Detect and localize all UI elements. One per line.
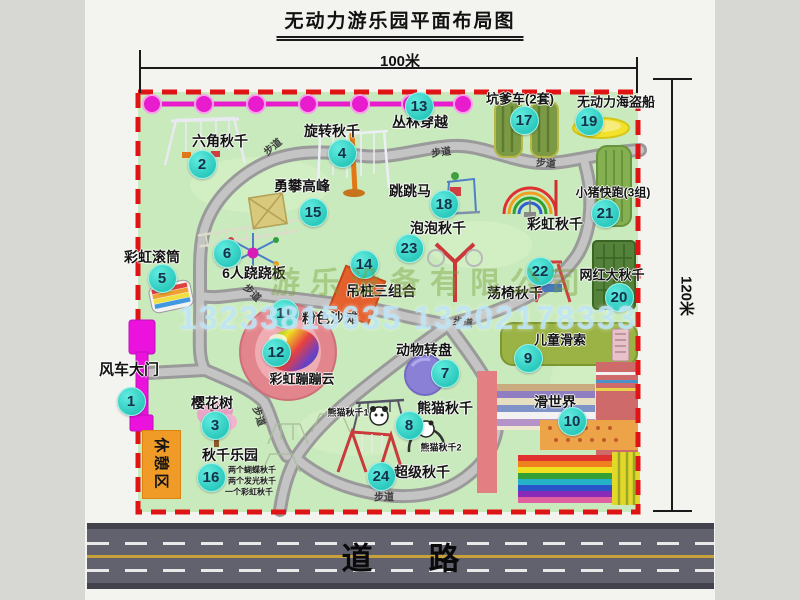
width-dimension-label: 100米: [380, 50, 420, 71]
road-label: 道路: [286, 534, 516, 579]
rest-area-label: 休憩区: [151, 437, 172, 491]
kids-zipline-icon: [501, 323, 637, 365]
height-dimension-label: 120米: [677, 276, 698, 316]
road: 道路: [87, 523, 714, 589]
rest-area-zone: 休憩区: [142, 430, 181, 499]
page-title: 无动力游乐园平面布局图: [276, 6, 523, 41]
animal-turntable-icon: [405, 355, 445, 395]
big-swing-icon: [593, 241, 635, 309]
piggy-run-icon: [597, 146, 631, 226]
pirate-ship-icon: [573, 118, 629, 138]
